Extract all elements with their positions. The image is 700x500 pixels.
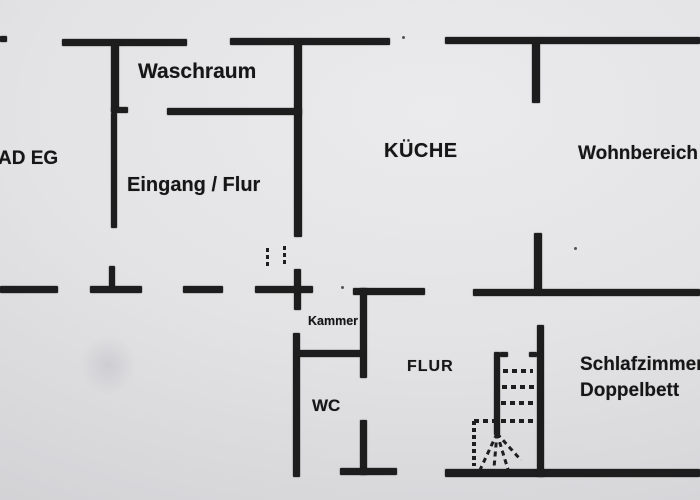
wall-kammer-right [360,288,367,378]
stair-tread-2 [502,385,536,389]
room-label-doppelbett: Doppelbett [580,380,679,402]
room-label-kueche: KÜCHE [384,140,458,163]
wall-eingang-left-upper [111,40,119,112]
wall-middle-seg-2 [90,286,142,293]
door-mark-2 [283,246,286,266]
wall-bottom-1 [340,468,397,475]
stair-side-dashed [472,421,476,466]
wall-kueche-stub-bottom [534,233,542,295]
door-mark-1 [266,248,269,266]
room-label-kammer: Kammer [308,314,358,328]
scan-speck-1 [402,36,405,39]
room-label-eingang-flur: Eingang / Flur [127,174,260,197]
wall-top-2 [230,38,390,45]
room-label-flur: FLUR [407,358,454,376]
scan-speck-2 [341,286,344,289]
room-label-waschraum: Waschraum [138,60,256,84]
wall-kueche-stub-top [532,40,540,103]
stair-tread-1 [503,369,533,373]
wall-waschraum-right [294,40,302,237]
wall-middle-seg-6 [473,289,700,296]
wall-top-3 [445,37,700,44]
room-label-schlafzimmer: Schlafzimmer [580,354,700,376]
room-label-wohnbereich: Wohnbereich [578,143,698,165]
wall-middle-seg-1 [0,286,58,293]
wall-bottom-2 [445,469,700,477]
wall-schlafzimmer-left-tick [529,352,537,357]
room-label-wc: WC [312,396,340,416]
room-label-bad-eg: AD EG [0,148,58,170]
stair-tread-4 [474,419,538,423]
wall-waschraum-bottom [167,108,302,115]
wall-kammer-wc-divider [295,350,365,357]
wall-top-1 [62,39,187,46]
stair-tread-3 [501,401,538,405]
floor-plan: AD EG Waschraum Eingang / Flur KÜCHE Woh… [0,0,700,500]
wall-middle-seg-3 [183,286,223,293]
wall-top-edge-left [0,36,7,42]
wall-wc-right-lower [360,420,367,475]
stair-stringer-tick [500,352,508,357]
scan-speck-3 [574,247,577,250]
wall-eingang-left-lower [111,113,117,228]
wall-middle-seg-4 [255,286,313,293]
wall-schlafzimmer-left [537,325,544,477]
scan-smudge [80,335,136,395]
